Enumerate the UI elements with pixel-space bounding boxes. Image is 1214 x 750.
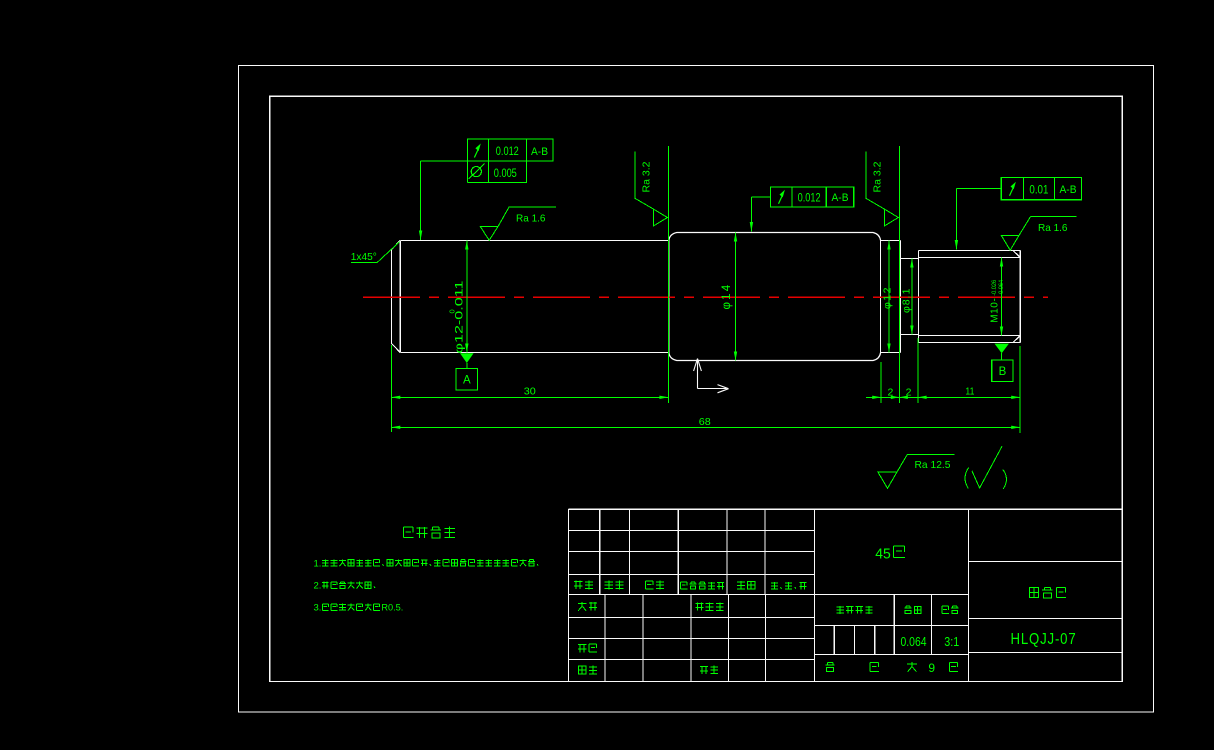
svg-text:A-B: A-B <box>1060 184 1077 196</box>
svg-text:A-B: A-B <box>832 192 849 204</box>
svg-text:0: 0 <box>447 309 456 313</box>
svg-text:0.005: 0.005 <box>494 168 517 180</box>
svg-text:3:1: 3:1 <box>944 635 959 649</box>
svg-text:φ14: φ14 <box>721 283 733 310</box>
svg-text:-0.026: -0.026 <box>992 279 998 296</box>
svg-text:2.: 2. <box>314 581 322 592</box>
svg-text:Ra 1.6: Ra 1.6 <box>516 213 546 225</box>
svg-text:45: 45 <box>875 546 891 563</box>
svg-text:φ12: φ12 <box>882 286 894 309</box>
svg-text:Ra 3.2: Ra 3.2 <box>641 161 653 192</box>
svg-text:1x45°: 1x45° <box>351 252 377 263</box>
svg-text:9: 9 <box>928 661 935 675</box>
svg-text:2: 2 <box>887 387 893 399</box>
svg-text:3.: 3. <box>314 603 322 614</box>
svg-text:11: 11 <box>965 385 974 397</box>
svg-text:φ8.1: φ8.1 <box>901 288 913 313</box>
svg-text:2: 2 <box>906 387 912 399</box>
svg-text:Ra 1.6: Ra 1.6 <box>1038 222 1068 234</box>
svg-text:A-B: A-B <box>531 146 548 158</box>
svg-text:Ra 3.2: Ra 3.2 <box>872 161 884 192</box>
svg-text:30: 30 <box>524 386 536 398</box>
svg-text:Ra 12.5: Ra 12.5 <box>915 459 951 471</box>
svg-text:A: A <box>463 375 471 387</box>
svg-text:0.012: 0.012 <box>496 146 519 158</box>
svg-text:HLQJJ-07: HLQJJ-07 <box>1011 631 1077 648</box>
svg-text:-0.064: -0.064 <box>999 279 1005 296</box>
svg-text:0.064: 0.064 <box>901 635 927 649</box>
svg-text:B: B <box>999 366 1007 378</box>
svg-text:M10-: M10- <box>990 298 1001 323</box>
svg-text:φ12-0.011: φ12-0.011 <box>454 281 466 354</box>
svg-text:R0.5.: R0.5. <box>381 603 403 614</box>
svg-text:0.012: 0.012 <box>798 192 821 204</box>
svg-text:1.: 1. <box>314 558 322 569</box>
svg-text:0.01: 0.01 <box>1029 184 1048 196</box>
svg-text:68: 68 <box>699 416 711 428</box>
